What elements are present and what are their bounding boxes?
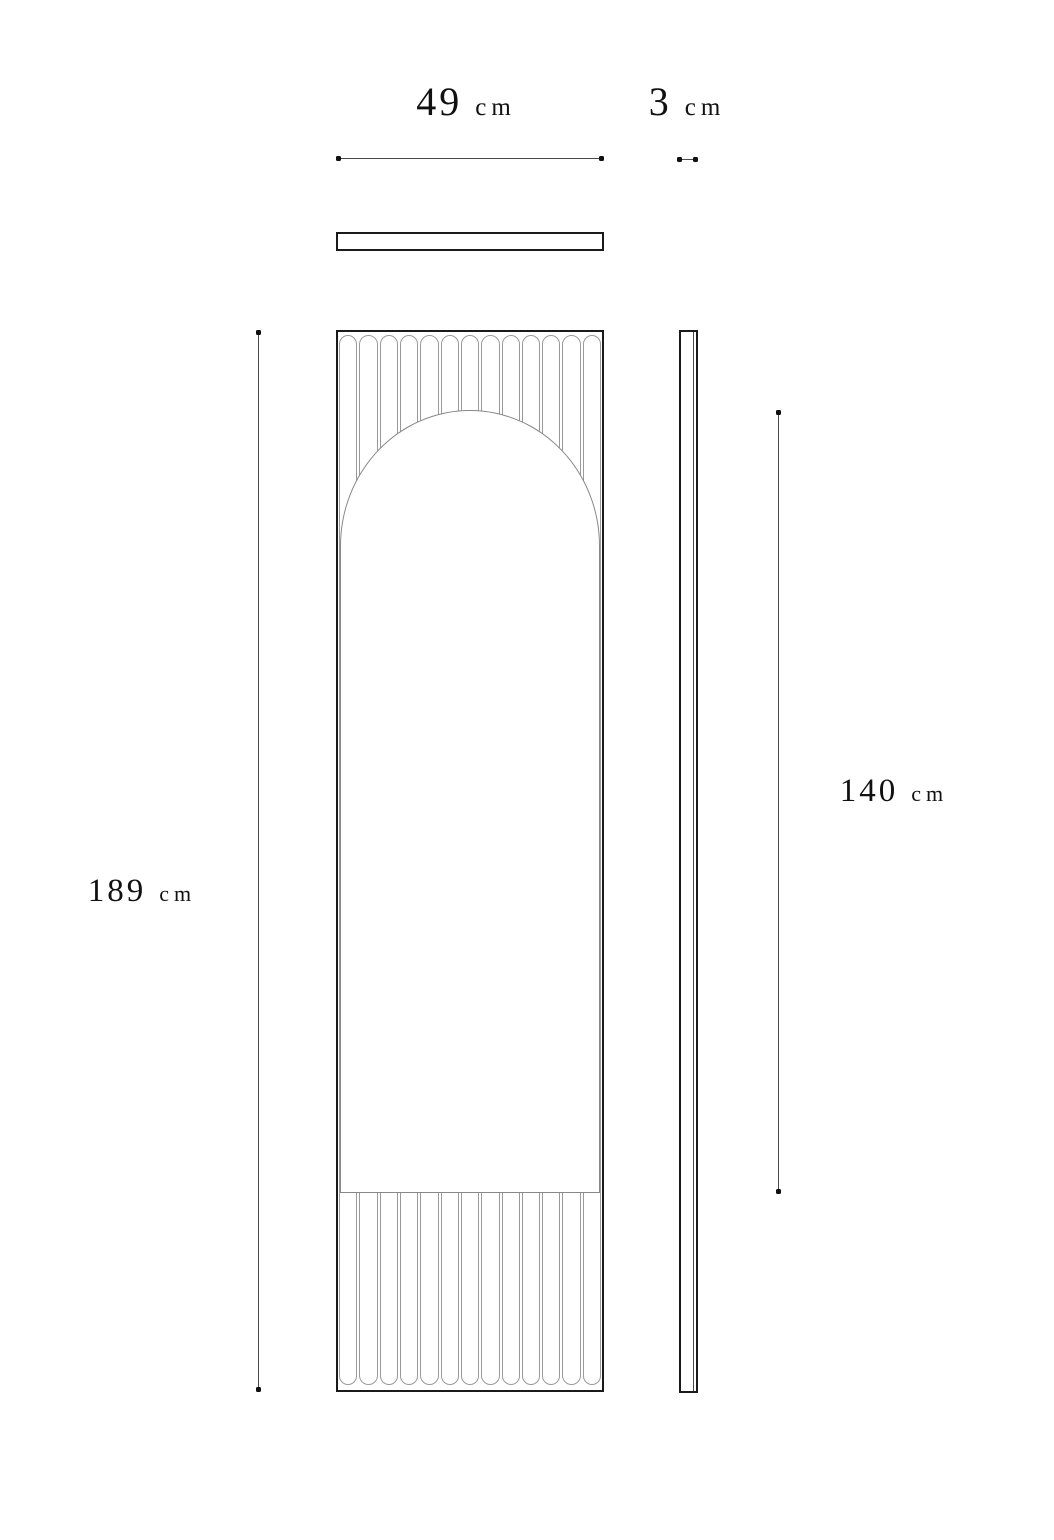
mirror-height-unit: cm [911, 781, 948, 806]
side-view-glass-line [693, 332, 694, 1391]
width-value: 49 [416, 79, 462, 124]
mirror-height-dimension-line [778, 412, 779, 1192]
dim-endpoint-dot [776, 1189, 781, 1194]
arched-mirror-shape [340, 410, 600, 1193]
overall-height-unit: cm [159, 881, 196, 906]
dimension-diagram-canvas: 49cm 3cm 189cm 140cm [0, 0, 1054, 1540]
depth-unit: cm [685, 94, 726, 121]
width-dimension-label: 49cm [346, 82, 586, 122]
depth-value: 3 [649, 79, 672, 124]
dim-endpoint-dot [677, 157, 682, 162]
front-view-outline [336, 330, 604, 1392]
mirror-height-value: 140 [840, 773, 899, 809]
width-unit: cm [475, 94, 516, 121]
side-view-outline [679, 330, 698, 1393]
dim-endpoint-dot [256, 330, 261, 335]
mirror-height-dimension-label: 140cm [774, 774, 1014, 808]
width-dimension-line [338, 158, 602, 159]
top-view-outline [336, 232, 604, 251]
depth-dimension-line [679, 159, 696, 160]
depth-dimension-label: 3cm [567, 82, 807, 122]
dim-endpoint-dot [336, 156, 341, 161]
dim-endpoint-dot [693, 157, 698, 162]
overall-height-dimension-label: 189cm [22, 874, 262, 908]
dim-endpoint-dot [599, 156, 604, 161]
overall-height-value: 189 [88, 873, 147, 909]
dim-endpoint-dot [776, 410, 781, 415]
overall-height-dimension-line [258, 332, 259, 1390]
dim-endpoint-dot [256, 1387, 261, 1392]
